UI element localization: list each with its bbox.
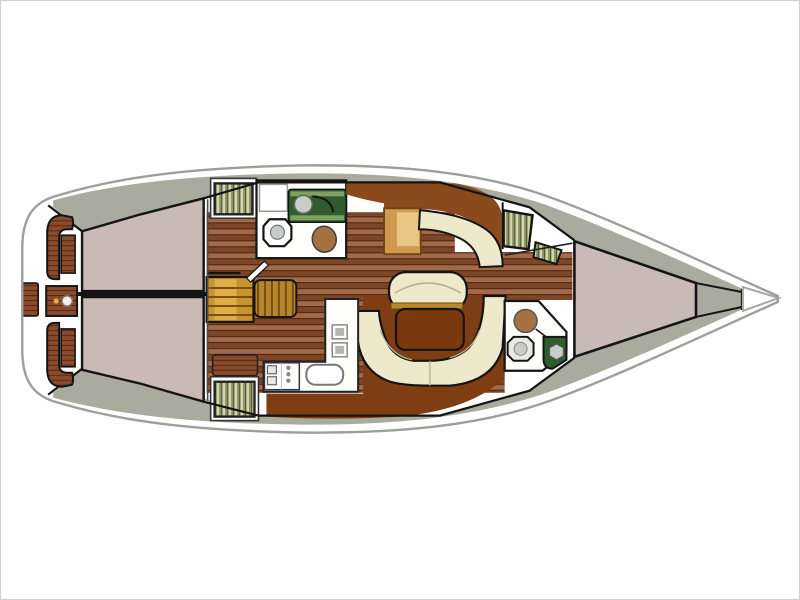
galley-seat-wood-block <box>213 355 258 376</box>
dinette-table <box>396 309 464 350</box>
forward-head-toilet-bowl <box>514 342 527 355</box>
stove-knob-1 <box>286 366 290 370</box>
companionway-steps-highlight <box>215 279 237 320</box>
helm-compass-dot <box>54 298 59 303</box>
chart-table-top <box>397 212 419 246</box>
forward-head-basin <box>514 309 537 332</box>
aft-head-sink-stripe-top <box>290 191 344 196</box>
cockpit-seat-slat-port <box>61 235 75 273</box>
galley-sink <box>306 365 343 385</box>
aft-head-shower-pan <box>259 184 287 211</box>
galley-sink-cover-1-inner <box>335 328 344 336</box>
stove-knob-2 <box>286 372 290 376</box>
aft-head-toilet-bowl <box>270 225 284 239</box>
stove-burner-2 <box>267 377 276 385</box>
steering-wheel <box>62 296 72 306</box>
stove-knob-3 <box>286 379 290 383</box>
stove-burner-1 <box>267 366 276 374</box>
aft-locker-port-shelves <box>215 183 253 214</box>
galley-sink-cover-2-inner <box>335 346 344 354</box>
forward-head-sink-bowl <box>550 344 564 360</box>
floor-plan-canvas <box>0 0 800 600</box>
cockpit-seat-slat-starboard <box>61 329 75 367</box>
aft-locker-starboard-shelves <box>215 382 255 417</box>
saloon-table-unit <box>254 280 296 317</box>
hanging-locker-large <box>504 210 533 249</box>
aft-head-sink-stripe-bottom <box>290 215 344 220</box>
transom-step <box>22 283 38 316</box>
aft-head-sink-bowl <box>294 195 312 213</box>
boat-plan-svg <box>1 1 799 599</box>
